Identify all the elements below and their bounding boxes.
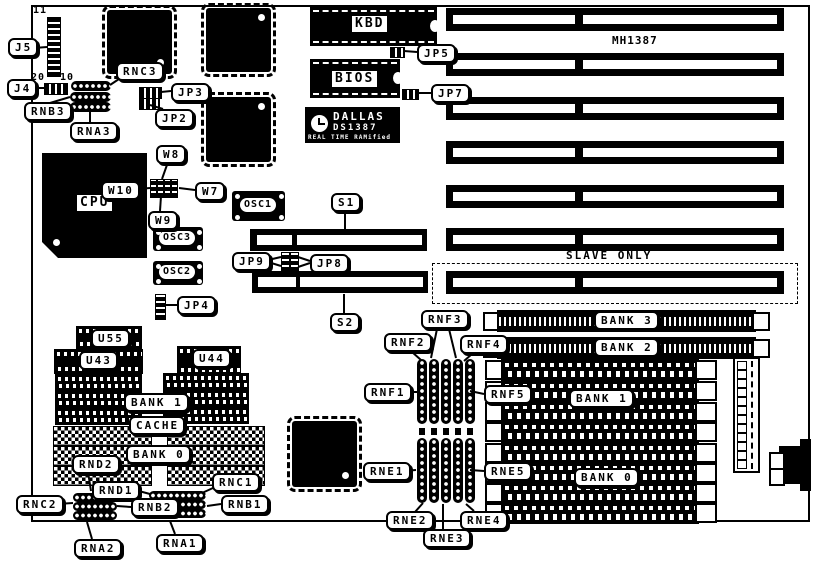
callout-rna3: RNA3 xyxy=(70,122,118,141)
callout-jp4: JP4 xyxy=(177,296,216,315)
callout-jp8: JP8 xyxy=(310,254,349,273)
callout-w8: W8 xyxy=(156,145,186,164)
callout-rnf5: RNF5 xyxy=(484,385,532,404)
leader-line-12 xyxy=(179,188,195,190)
leader-line-25 xyxy=(117,506,131,507)
callout-j4: J4 xyxy=(7,79,37,98)
callout-bank1-simm: BANK 1 xyxy=(569,389,634,408)
leader-line-30 xyxy=(449,329,456,358)
leader-line-21 xyxy=(88,472,91,491)
callout-u43: U43 xyxy=(79,351,118,370)
leader-line-8 xyxy=(404,51,417,52)
callout-rnf1: RNF1 xyxy=(364,383,412,402)
callout-jp9: JP9 xyxy=(232,252,271,271)
callout-rne3: RNE3 xyxy=(423,529,471,548)
callout-rnf2: RNF2 xyxy=(384,333,432,352)
leader-line-32 xyxy=(464,354,472,361)
callout-s2: S2 xyxy=(330,313,360,332)
callout-bank0-cache: BANK 0 xyxy=(126,445,191,464)
callout-rnd1: RND1 xyxy=(92,481,140,500)
callout-rne2: RNE2 xyxy=(386,511,434,530)
callout-u44: U44 xyxy=(192,349,231,368)
leader-line-23 xyxy=(202,488,213,493)
callout-jp7: JP7 xyxy=(431,84,470,103)
callout-bank2: BANK 2 xyxy=(594,338,659,357)
callout-rna1: RNA1 xyxy=(156,534,204,553)
callout-rna2: RNA2 xyxy=(74,539,122,558)
callout-rnc2: RNC2 xyxy=(16,495,64,514)
callout-jp5: JP5 xyxy=(417,44,456,63)
leader-line-27 xyxy=(87,522,92,539)
leader-line-10 xyxy=(162,162,168,179)
callout-bank3: BANK 3 xyxy=(594,311,659,330)
leader-line-19 xyxy=(298,263,310,267)
leader-line-36 xyxy=(470,470,484,471)
callout-jp3: JP3 xyxy=(171,83,210,102)
leader-line-31 xyxy=(412,352,421,360)
callout-w10: W10 xyxy=(101,181,140,200)
callout-bank1-cache: BANK 1 xyxy=(124,393,189,412)
callout-rnb3: RNB3 xyxy=(24,102,72,121)
callout-w9: W9 xyxy=(148,211,178,230)
leader-line-6 xyxy=(161,91,171,92)
callout-bank0-simm: BANK 0 xyxy=(574,468,639,487)
callout-s1: S1 xyxy=(331,193,361,212)
callout-rne4: RNE4 xyxy=(460,511,508,530)
callout-rnb2: RNB2 xyxy=(131,498,179,517)
leader-line-29 xyxy=(431,329,437,358)
callout-rnf3: RNF3 xyxy=(421,310,469,329)
callout-rne5: RNE5 xyxy=(484,462,532,481)
leader-line-28 xyxy=(170,521,175,534)
leader-line-13 xyxy=(160,196,161,211)
leader-line-18 xyxy=(298,257,310,261)
callout-rnd2: RND2 xyxy=(72,455,120,474)
callout-jp2: JP2 xyxy=(155,109,194,128)
callout-rnb1: RNB1 xyxy=(221,495,269,514)
leader-line-34 xyxy=(470,391,484,394)
callout-rnf4: RNF4 xyxy=(460,335,508,354)
callout-u55: U55 xyxy=(91,329,130,348)
motherboard-diagram: MH1387 SLAVE ONLY 11 20 10 KBD BIOS DALL… xyxy=(0,0,816,564)
callout-rnc1: RNC1 xyxy=(212,473,260,492)
leader-line-38 xyxy=(466,504,474,511)
callout-rne1: RNE1 xyxy=(363,462,411,481)
callout-rnc3: RNC3 xyxy=(116,62,164,81)
leader-line-26 xyxy=(207,504,221,506)
callout-w7: W7 xyxy=(195,182,225,201)
callout-cache: CACHE xyxy=(129,416,185,435)
callout-j5: J5 xyxy=(8,38,38,57)
